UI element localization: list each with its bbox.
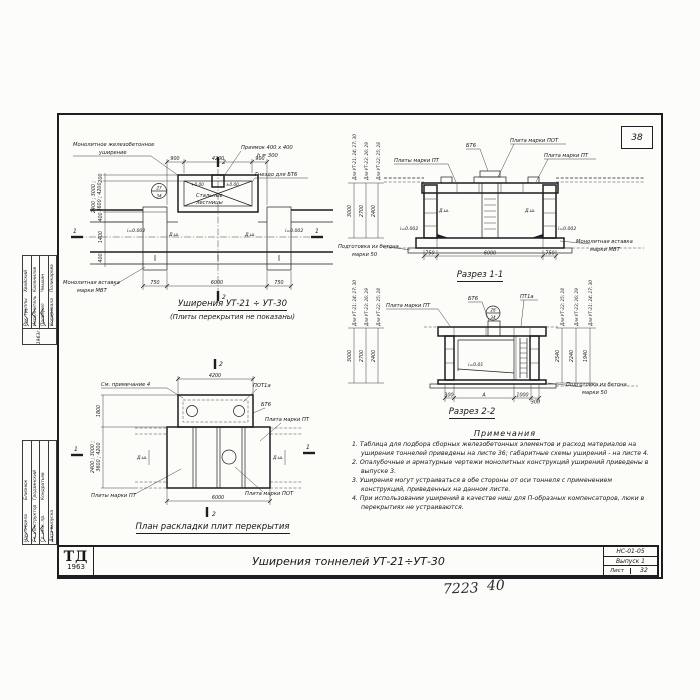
signature-row: Гл. конструктор Гродзинский (32, 441, 41, 544)
label-joint: Д.ш. (438, 208, 450, 214)
slab-upper-box (178, 395, 253, 427)
svg-text:Для УТ-23; 26; 29: Для УТ-23; 26; 29 (364, 142, 369, 181)
svg-text:28: 28 (490, 308, 496, 313)
svg-text:Для УТ-22; 25; 28: Для УТ-22; 25; 28 (376, 288, 381, 327)
svg-text:6000: 6000 (212, 495, 224, 501)
plan-detail-circle: 27 34 (152, 184, 167, 199)
label-plate-pt: Плита марки ПТ (386, 303, 431, 309)
section-ground-lines (384, 178, 644, 182)
publisher-logo: ТД 1963 (59, 547, 94, 575)
note-item: 4. При использовании уширений в качестве… (352, 495, 658, 512)
handwritten-order-number: 7223 (443, 580, 479, 597)
issue-number: Выпуск 1 (604, 557, 657, 567)
svg-text:2: 2 (219, 361, 223, 368)
label-slope: i=0.002 (558, 226, 576, 232)
svg-text:6000: 6000 (484, 251, 496, 257)
label-joint: Д.ш. (244, 232, 256, 238)
signature-scribble (40, 308, 48, 328)
svg-text:Для УТ-23; 26; 29: Для УТ-23; 26; 29 (364, 288, 369, 327)
svg-text:400: 400 (98, 253, 104, 262)
signature-strip-upper: 1963г. Рук. группы Хвойский Исполнитель … (22, 255, 57, 345)
svg-text:750: 750 (545, 251, 554, 257)
svg-text:3000: 3000 (347, 205, 353, 217)
signature-scribble (48, 308, 56, 328)
sheet-number-row: Лист 32 (604, 566, 657, 575)
svg-text:Для УТ-21; 24; 27; 30: Для УТ-21; 24; 27; 30 (352, 280, 357, 327)
svg-text:4200: 4200 (212, 156, 224, 162)
label-joint: Д.ш. (524, 208, 536, 214)
signature-row: Нач. отдела Близнюк (23, 441, 32, 544)
label-bt6: БТ6 (466, 143, 477, 149)
label-slope: i=0.002 (400, 226, 418, 232)
notes-block: Примечания 1. Таблица для подбора сборны… (352, 429, 658, 513)
label-plate-pt: Плита марки ПТ (265, 417, 310, 423)
elevation-mark: ±0.00 (226, 182, 239, 187)
label-slope: i=0.002 (285, 228, 303, 234)
section2-structure (424, 321, 638, 388)
label-bt6: БТ6 (261, 402, 272, 408)
svg-text:750: 750 (425, 251, 434, 257)
label-insert: Монолитная вставка (576, 239, 633, 245)
svg-text:34: 34 (490, 315, 496, 320)
section-labels: Плиты марки ПТ БТ6 Плита марки ПОТ Плита… (338, 138, 633, 258)
section2-detail-circle: 28 34 (486, 306, 500, 320)
svg-text:2400: 2400 (371, 350, 377, 362)
svg-text:2700: 2700 (359, 350, 365, 362)
label-pot1a: ПОТ1а (253, 383, 271, 389)
svg-text:марки МВТ: марки МВТ (590, 247, 621, 253)
label-bt6: БТ6 (468, 296, 479, 302)
svg-text:марки МВТ: марки МВТ (77, 288, 108, 294)
svg-text:1800: 1800 (96, 405, 102, 417)
svg-text:750: 750 (274, 280, 283, 286)
svg-text:1: 1 (306, 444, 310, 451)
svg-text:3600 ; 4200: 3600 ; 4200 (96, 442, 102, 471)
detail-sheet: 34 (156, 194, 162, 199)
svg-text:Для УТ-22; 25; 28: Для УТ-22; 25; 28 (560, 288, 565, 327)
signature-row: Проверил Чмыхин (40, 256, 49, 328)
svg-text:Для УТ-21; 24; 27; 30: Для УТ-21; 24; 27; 30 (352, 134, 357, 181)
signature-scribble (40, 524, 48, 544)
svg-text:1: 1 (73, 228, 77, 235)
label-pit: Приямок 400 x 400 (241, 145, 293, 151)
svg-text:Для УТ-23; 26; 29: Для УТ-23; 26; 29 (574, 288, 579, 327)
title-block-codes: НС-01-05 Выпуск 1 Лист 32 (603, 547, 657, 575)
svg-text:1940: 1940 (583, 350, 589, 362)
signature-row: Дата выпуска (49, 441, 57, 544)
label-see-note: См. примечание 4 (101, 382, 150, 388)
label-insert: Монолитная вставка (63, 280, 120, 286)
title-block: ТД 1963 Уширения тоннелей УТ-21÷УТ-30 НС… (57, 545, 659, 577)
signature-year: 1963г. (23, 328, 56, 344)
svg-text:1000: 1000 (516, 393, 528, 399)
section-1-1-drawing: Плиты марки ПТ БТ6 Плита марки ПОТ Плита… (338, 115, 660, 290)
section-dimensions: 750 6000 750 3000 2700 2400 Для УТ-21; 2… (347, 134, 558, 260)
doc-code: НС-01-05 (604, 547, 657, 557)
signature-scribble (31, 308, 39, 328)
slab-layout-title: План раскладки плит перекрытия (85, 522, 340, 534)
drawing-title: Уширения тоннелей УТ-21÷УТ-30 (94, 547, 603, 575)
svg-text:марки 50: марки 50 (582, 390, 608, 396)
svg-text:1400: 1400 (98, 231, 104, 243)
sheet-number: 32 (631, 567, 657, 574)
drawing-sheet: 38 (0, 0, 700, 700)
label-plates-pt: Плиты марки ПТ (394, 158, 440, 164)
svg-text:900: 900 (255, 156, 264, 162)
svg-text:марки 50: марки 50 (352, 252, 378, 258)
slab-labels: См. примечание 4 ПОТ1а БТ6 Плита марки П… (91, 382, 310, 499)
label-plate-pot: Плита марки ПОТ (245, 491, 294, 497)
svg-text:1: 1 (315, 228, 319, 235)
svg-text:2400: 2400 (371, 205, 377, 217)
signature-row: Гл. инж. пр. Кондратьев (40, 441, 49, 544)
svg-text:2400 ; 3000 ;: 2400 ; 3000 ; (91, 181, 97, 214)
note-item: 2. Опалубочные и арматурные чертежи моно… (352, 459, 658, 476)
label-pt1a: ПТ1а (520, 294, 534, 300)
signature-scribble (31, 524, 39, 544)
svg-text:Для УТ-21; 24; 27; 30: Для УТ-21; 24; 27; 30 (588, 280, 593, 327)
label-plates-pt: Плиты марки ПТ (91, 493, 137, 499)
signature-strip-lower: Нач. отдела Близнюк Гл. конструктор Грод… (22, 440, 57, 545)
plan-widening-title: Уширения УТ-21 ÷ УТ-30 (Плиты перекрытия… (140, 299, 325, 321)
label-socket: Гнездо для БТ6 (255, 172, 298, 178)
detail-number: 27 (156, 186, 162, 191)
svg-text:А: А (481, 393, 485, 399)
signature-scribble (23, 524, 31, 544)
label-plate-pt: Плита марки ПТ (544, 153, 589, 159)
svg-text:300: 300 (531, 400, 540, 406)
svg-text:300: 300 (444, 393, 453, 399)
svg-text:2400 ; 3000 ;: 2400 ; 3000 ; (90, 441, 96, 474)
svg-text:400: 400 (98, 212, 104, 221)
section-1-1-title: Разрез 1-1 (415, 270, 545, 282)
svg-text:900: 900 (170, 156, 179, 162)
signature-scribble (48, 524, 56, 544)
label-slope: i=0.01 (468, 362, 483, 368)
label-widening: Монолитное железобетонное (73, 142, 154, 148)
handwritten-page-number: 40 (487, 578, 505, 595)
signature-row: Исполнитель Каленилов (32, 256, 41, 328)
label-stairs: Стальные (196, 193, 223, 199)
note-item: 1. Таблица для подбора сборных железобет… (352, 441, 658, 458)
label-plate-pot: Плита марки ПОТ (510, 138, 559, 144)
label-slope: i=0.002 (127, 228, 145, 234)
svg-text:6000: 6000 (211, 280, 223, 286)
svg-text:2700: 2700 (359, 205, 365, 217)
signature-row: Копировала Поликарова (49, 256, 57, 328)
label-joint: Д.ш. (136, 455, 148, 461)
section-2-2-title: Разрез 2-2 (407, 407, 537, 419)
svg-text:200: 200 (98, 173, 104, 182)
svg-text:4200: 4200 (209, 373, 221, 379)
svg-text:2: 2 (212, 511, 216, 518)
svg-text:лестницы: лестницы (195, 200, 223, 206)
svg-text:1: 1 (74, 446, 78, 453)
svg-text:3000: 3000 (347, 350, 353, 362)
signature-row: Рук. группы Хвойский (23, 256, 32, 328)
sheet-word: Лист (604, 568, 631, 574)
svg-text:Для УТ-22; 25; 28: Для УТ-22; 25; 28 (376, 142, 381, 181)
plan-monolithic-piers (143, 207, 291, 270)
svg-text:2240: 2240 (569, 350, 575, 362)
svg-text:3600 ; 4200: 3600 ; 4200 (97, 182, 103, 211)
label-joint: Д.ш. (272, 455, 284, 461)
svg-text:2540: 2540 (555, 350, 561, 362)
svg-text:уширение: уширение (98, 150, 127, 156)
label-joint: Д.ш. (168, 232, 180, 238)
elevation-mark: +0.00 (191, 182, 204, 187)
note-item: 3. Уширения могут устраиваться в обе сто… (352, 477, 658, 494)
notes-title: Примечания (352, 429, 658, 438)
svg-text:750: 750 (150, 280, 159, 286)
signature-scribble (23, 308, 31, 328)
